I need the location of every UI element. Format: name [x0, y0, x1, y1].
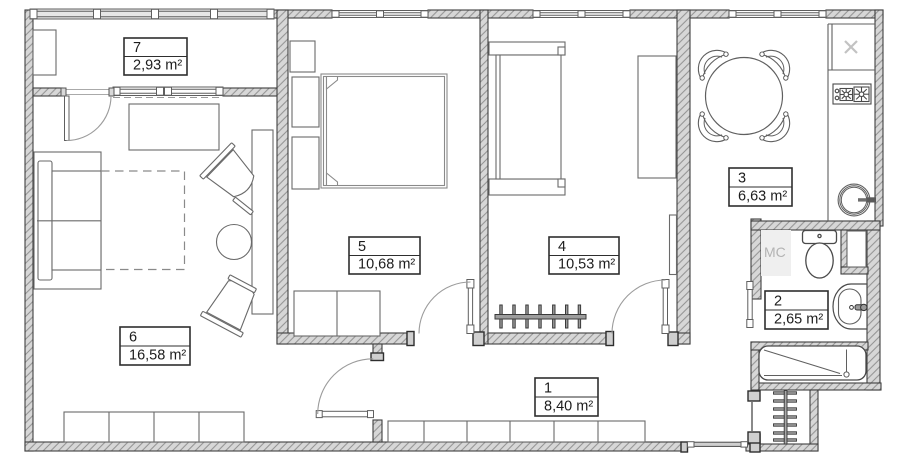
- svg-text:8,40 m²: 8,40 m²: [544, 399, 593, 415]
- svg-text:5: 5: [358, 239, 366, 255]
- svg-text:MC: MC: [764, 244, 786, 260]
- svg-text:6,63 m²: 6,63 m²: [738, 189, 787, 205]
- svg-text:2,93 m²: 2,93 m²: [133, 58, 182, 74]
- svg-text:10,68 m²: 10,68 m²: [358, 257, 415, 273]
- svg-text:1: 1: [544, 381, 552, 397]
- svg-text:7: 7: [133, 40, 141, 56]
- svg-text:2,65 m²: 2,65 m²: [774, 312, 823, 328]
- svg-text:4: 4: [558, 239, 566, 255]
- svg-text:3: 3: [738, 171, 746, 187]
- svg-text:16,58 m²: 16,58 m²: [129, 348, 186, 364]
- svg-text:2: 2: [774, 294, 782, 310]
- svg-text:6: 6: [129, 330, 137, 346]
- svg-text:10,53 m²: 10,53 m²: [558, 257, 615, 273]
